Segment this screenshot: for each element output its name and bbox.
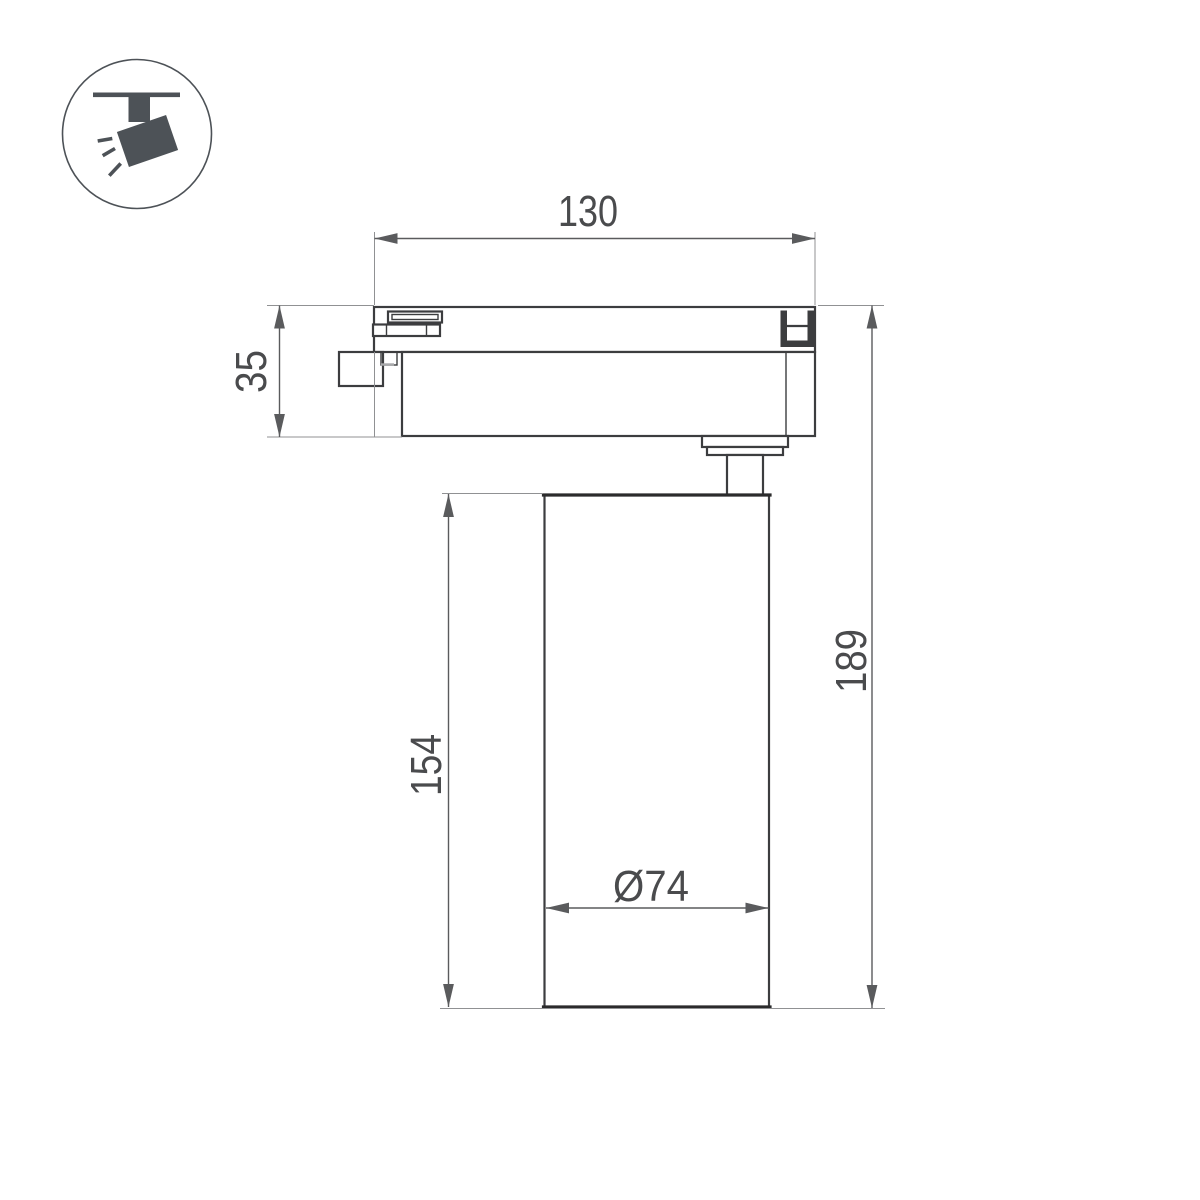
track-adapter bbox=[339, 307, 815, 495]
cylinder-body bbox=[545, 495, 770, 1007]
dim-diameter-label: Ø74 bbox=[613, 862, 689, 911]
drawing-page: 130 35 154 189 Ø74 bbox=[0, 0, 1200, 1200]
lamp-cylinder bbox=[544, 495, 771, 1007]
joint-step-2 bbox=[707, 447, 783, 455]
joint-stem bbox=[727, 455, 763, 495]
adapter-contact-clip-lower bbox=[373, 325, 440, 337]
dim-total-height-label: 189 bbox=[827, 629, 876, 693]
dim-adapter-height-label: 35 bbox=[227, 350, 276, 393]
joint-step-1 bbox=[702, 436, 788, 447]
fixture-type-icon bbox=[63, 60, 212, 209]
dimension-track-width: 130 bbox=[375, 187, 816, 305]
dim-track-width-label: 130 bbox=[558, 187, 618, 236]
dimension-body-height: 154 bbox=[402, 494, 543, 1008]
dim-body-height-label: 154 bbox=[402, 734, 451, 796]
adapter-latch-lever bbox=[339, 352, 383, 386]
icon-stem bbox=[129, 96, 151, 122]
adapter-lower-body bbox=[402, 352, 815, 436]
swivel-joint bbox=[702, 436, 788, 495]
adapter-contact-clip-upper bbox=[388, 312, 442, 323]
icon-light-ray-1 bbox=[98, 139, 113, 142]
luminaire-drawing bbox=[339, 307, 815, 1007]
technical-drawing: 130 35 154 189 Ø74 bbox=[0, 0, 1200, 1200]
